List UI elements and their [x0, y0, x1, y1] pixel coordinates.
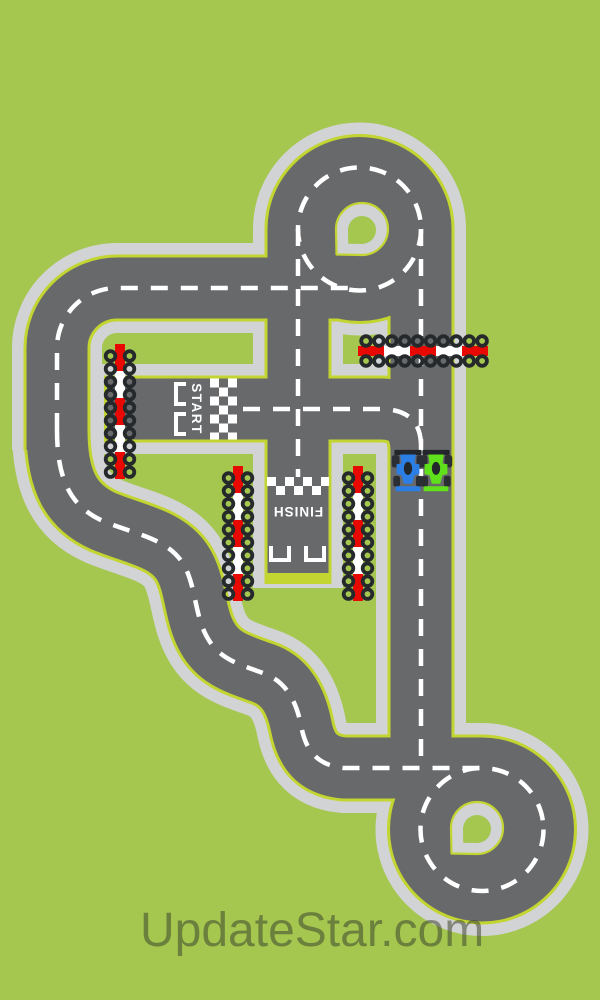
- watermark-text: UpdateStar.com: [140, 903, 484, 958]
- finish-label: FINISH: [258, 497, 338, 525]
- race-track-playmat: START FINISH UpdateStar.com: [0, 0, 600, 1000]
- bottom-loop-island: [451, 802, 503, 854]
- top-loop-island: [336, 203, 388, 255]
- finish-checker-strip: [267, 477, 329, 495]
- start-label: START: [158, 374, 234, 444]
